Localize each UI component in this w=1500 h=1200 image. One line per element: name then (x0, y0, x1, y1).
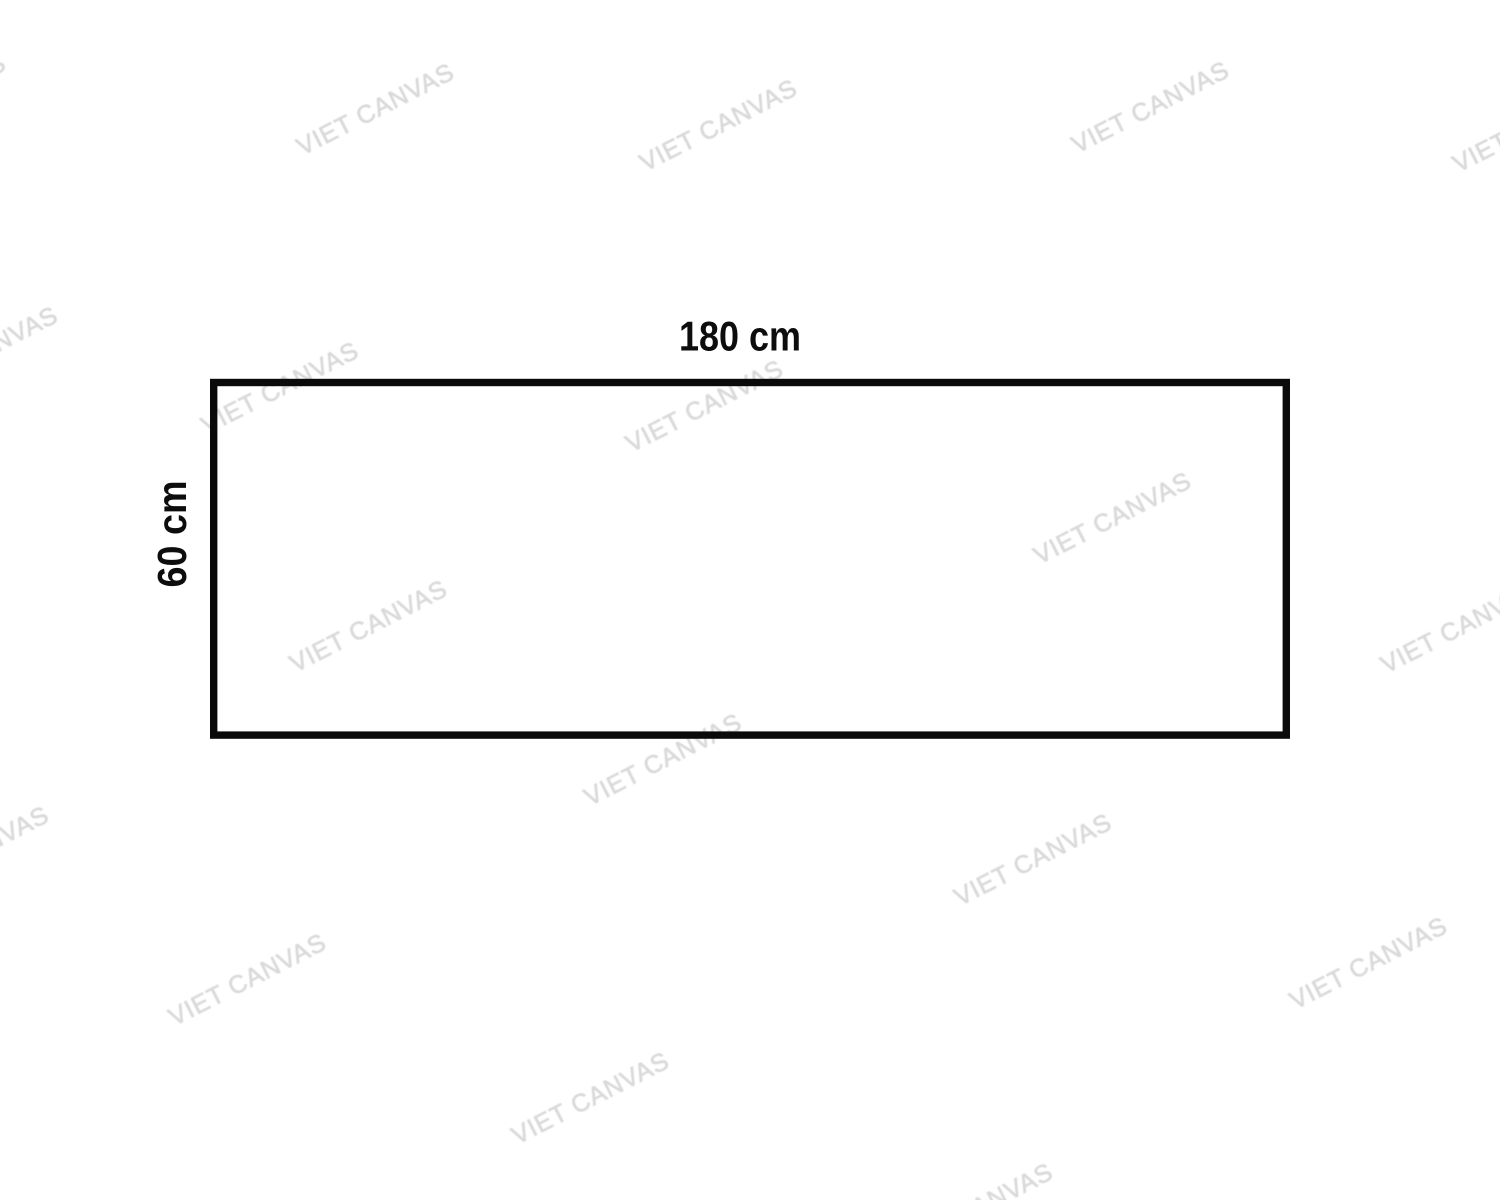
svg-text:180 cm: 180 cm (679, 313, 801, 360)
svg-text:60 cm: 60 cm (149, 481, 195, 588)
